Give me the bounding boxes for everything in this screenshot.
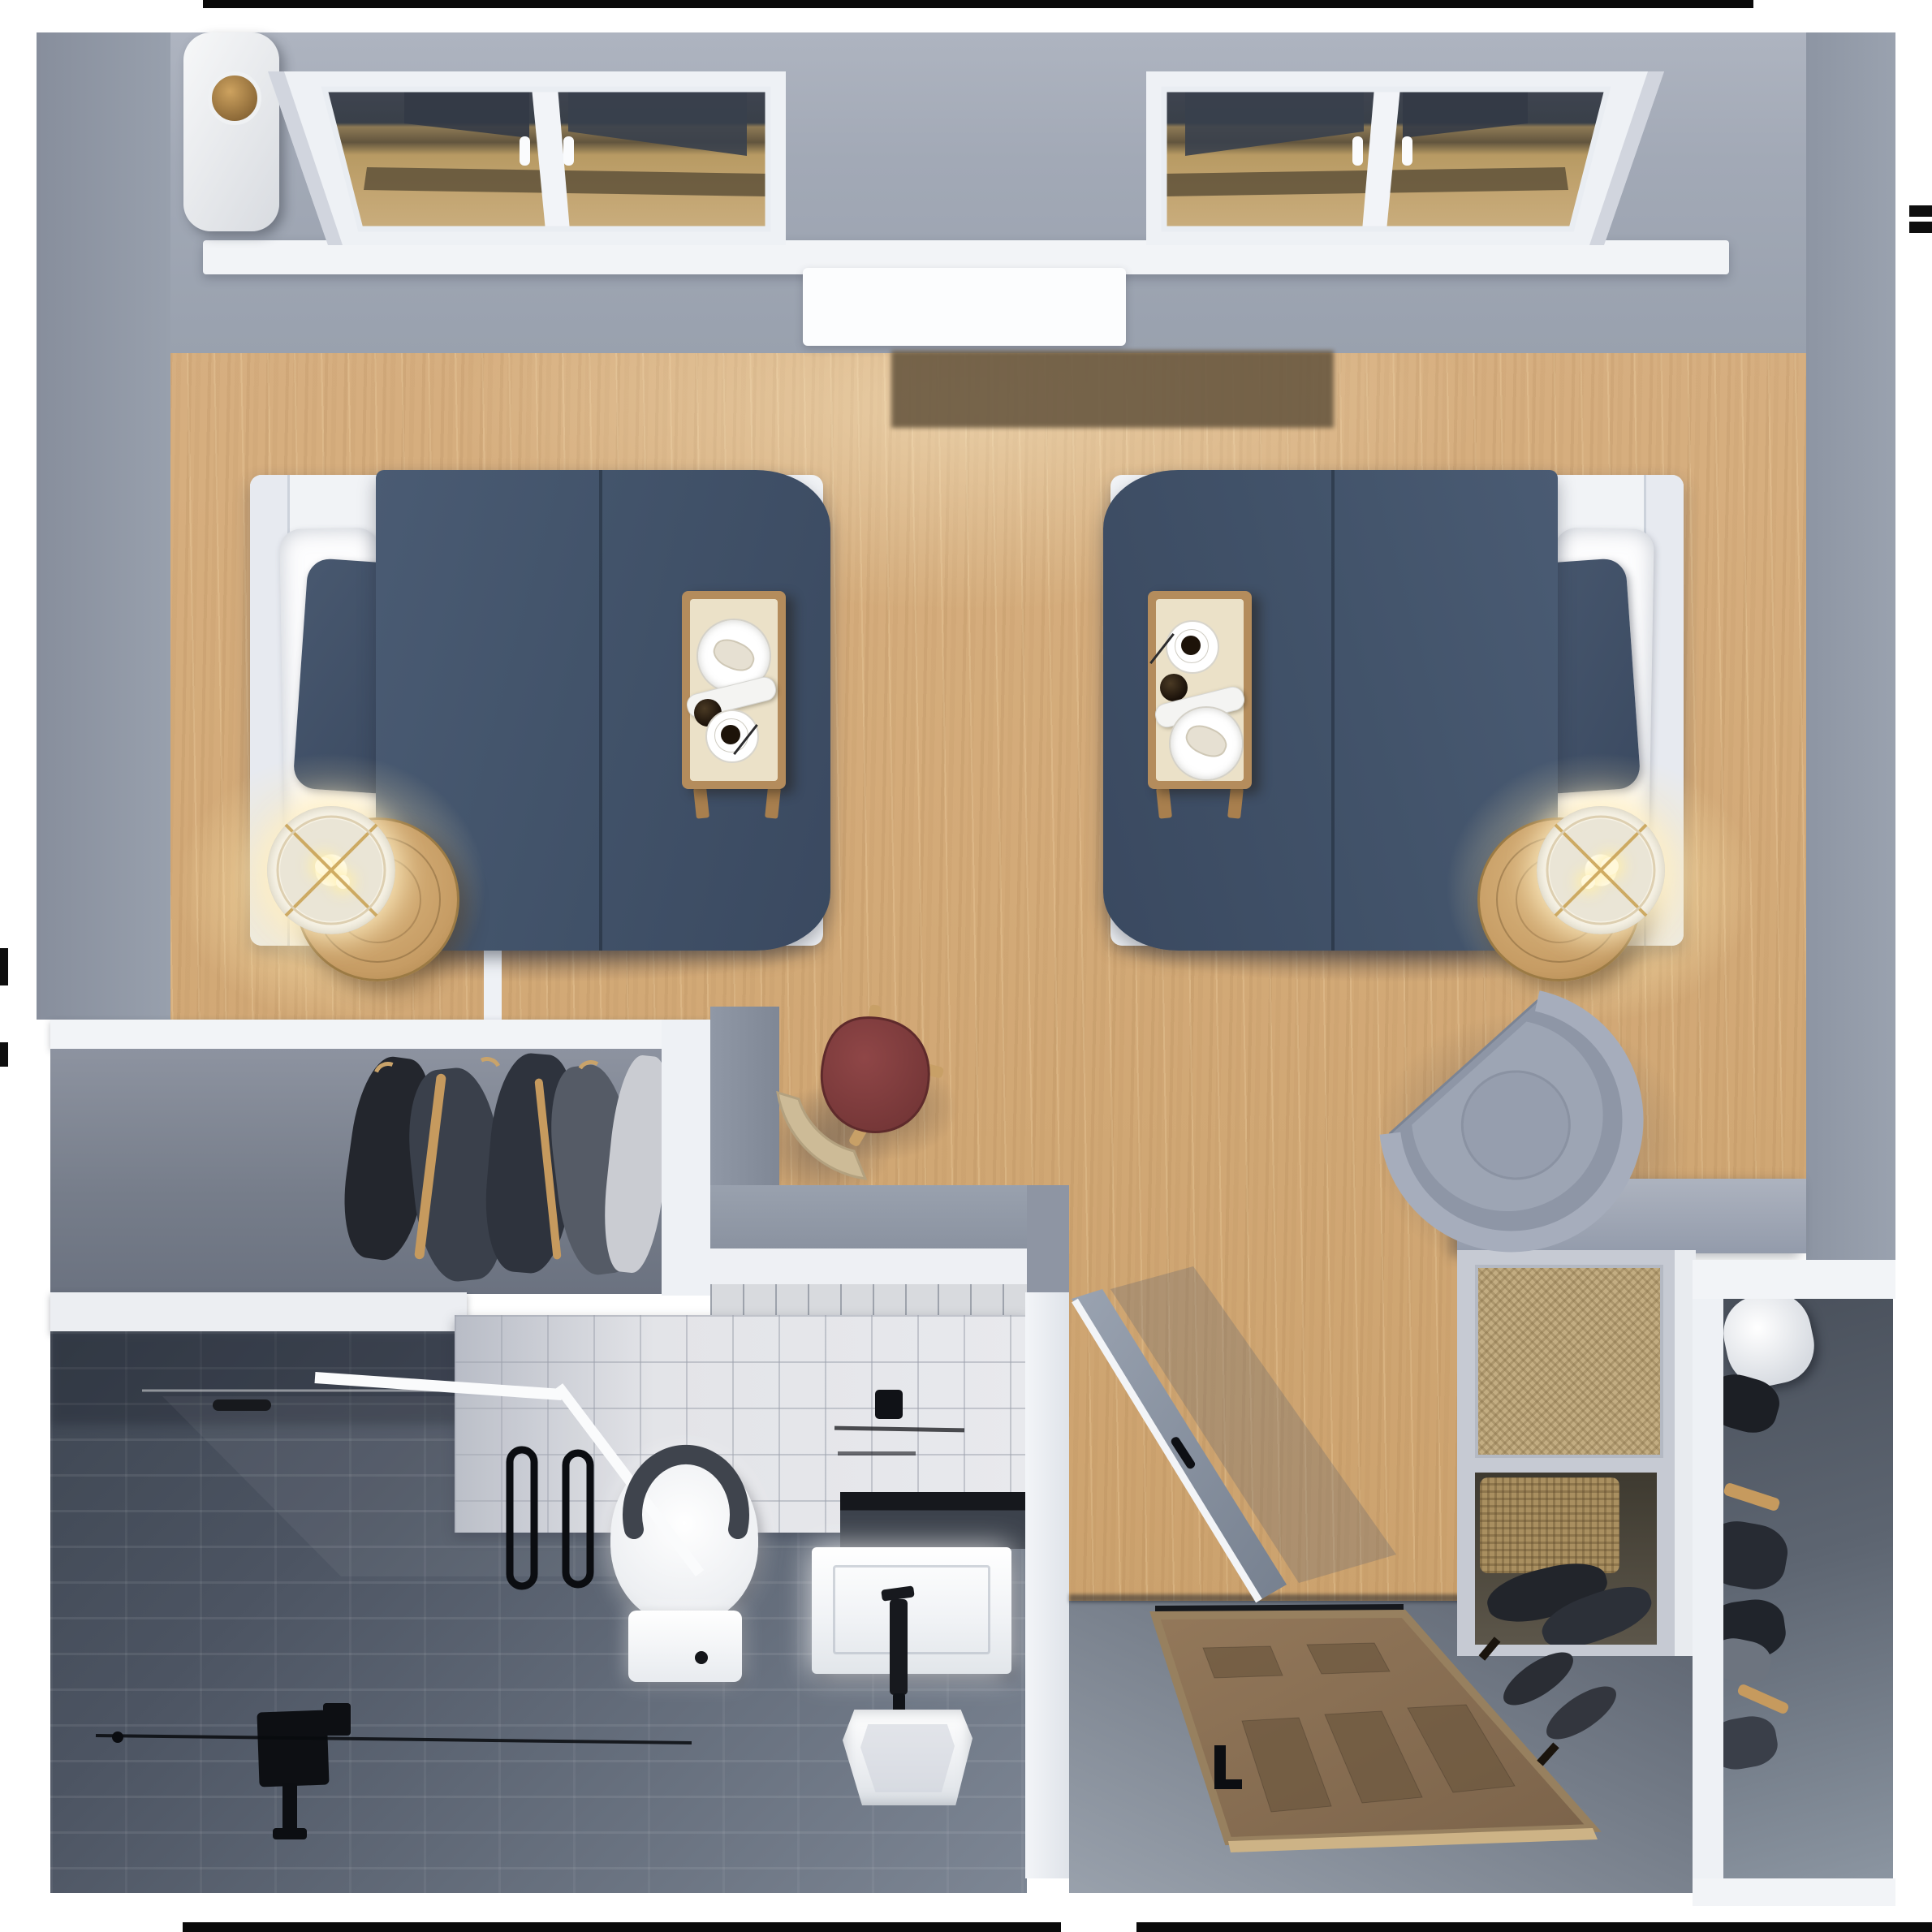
lamp-bulb — [336, 875, 350, 889]
jar — [1160, 674, 1188, 701]
hamper — [183, 32, 279, 231]
closet-right — [1723, 1299, 1893, 1878]
wall-corner — [710, 1007, 779, 1187]
vanity — [812, 1547, 1011, 1674]
closet-left-wall — [662, 1020, 710, 1296]
hanging-clothes — [1723, 1712, 1781, 1773]
lamp-bulb — [1601, 857, 1619, 875]
vanity-mirror — [840, 1492, 1027, 1549]
wall-left — [37, 32, 170, 1020]
closet-left — [50, 1049, 662, 1294]
letterbox-bottom — [1136, 1922, 1932, 1932]
wall-panel — [803, 268, 1126, 346]
saucer — [705, 709, 759, 763]
faucet — [890, 1599, 908, 1695]
duvet-fold — [1331, 470, 1335, 951]
toilet — [610, 1451, 758, 1624]
wood-hanger — [1723, 1482, 1781, 1512]
overbed-tray-left — [682, 591, 786, 789]
edge-mark — [0, 948, 8, 985]
cane-panel — [1475, 1265, 1663, 1458]
closet-right-wall — [1693, 1299, 1723, 1878]
flush-button — [695, 1651, 708, 1664]
lamp-bulb — [315, 857, 333, 875]
overbed-tray-right — [1148, 591, 1252, 789]
grab-bar — [213, 1399, 271, 1411]
hamper-opening — [208, 71, 261, 125]
coffee-cup — [1175, 629, 1209, 663]
bathroom-wall — [50, 1292, 467, 1333]
shower-bench-arm — [323, 1703, 351, 1736]
console-top — [1457, 1179, 1806, 1253]
black-cup — [875, 1390, 903, 1419]
shower-bench-leg — [282, 1783, 297, 1833]
edge-mark — [0, 1042, 8, 1067]
wall-cap — [710, 1248, 1027, 1286]
edge-mark — [1909, 222, 1932, 233]
lamp-bulb — [1581, 875, 1595, 889]
closet-right-wall — [1693, 1260, 1895, 1299]
towel-bar — [838, 1451, 916, 1455]
panel-shadow — [891, 351, 1334, 428]
hanging-clothes — [1723, 1516, 1792, 1594]
coffee — [1181, 636, 1201, 655]
lamp-shade-right — [1537, 806, 1665, 934]
shower-bench-foot — [273, 1828, 307, 1839]
toilet-tank — [628, 1611, 742, 1682]
letterbox-bottom — [183, 1922, 1061, 1932]
floorplan-render — [0, 0, 1932, 1932]
wall-right — [1806, 32, 1895, 1263]
letterbox-top — [203, 0, 1753, 8]
coffee-cup — [714, 718, 748, 753]
wall-corner — [710, 1185, 1027, 1250]
closet-right-wall — [1693, 1878, 1895, 1906]
edge-mark — [1909, 205, 1932, 217]
coffee — [721, 725, 740, 744]
wood-hanger — [1736, 1683, 1790, 1715]
woven-basket — [1480, 1477, 1619, 1573]
duvet-fold — [599, 470, 602, 951]
closet-left-wall — [50, 1020, 710, 1049]
saucer — [1166, 620, 1219, 674]
wall-corner — [1027, 1185, 1069, 1295]
shower-bench — [257, 1710, 329, 1788]
console-shelf — [1475, 1473, 1657, 1645]
bathroom-door-frame — [1025, 1292, 1069, 1878]
sink — [843, 1710, 972, 1805]
